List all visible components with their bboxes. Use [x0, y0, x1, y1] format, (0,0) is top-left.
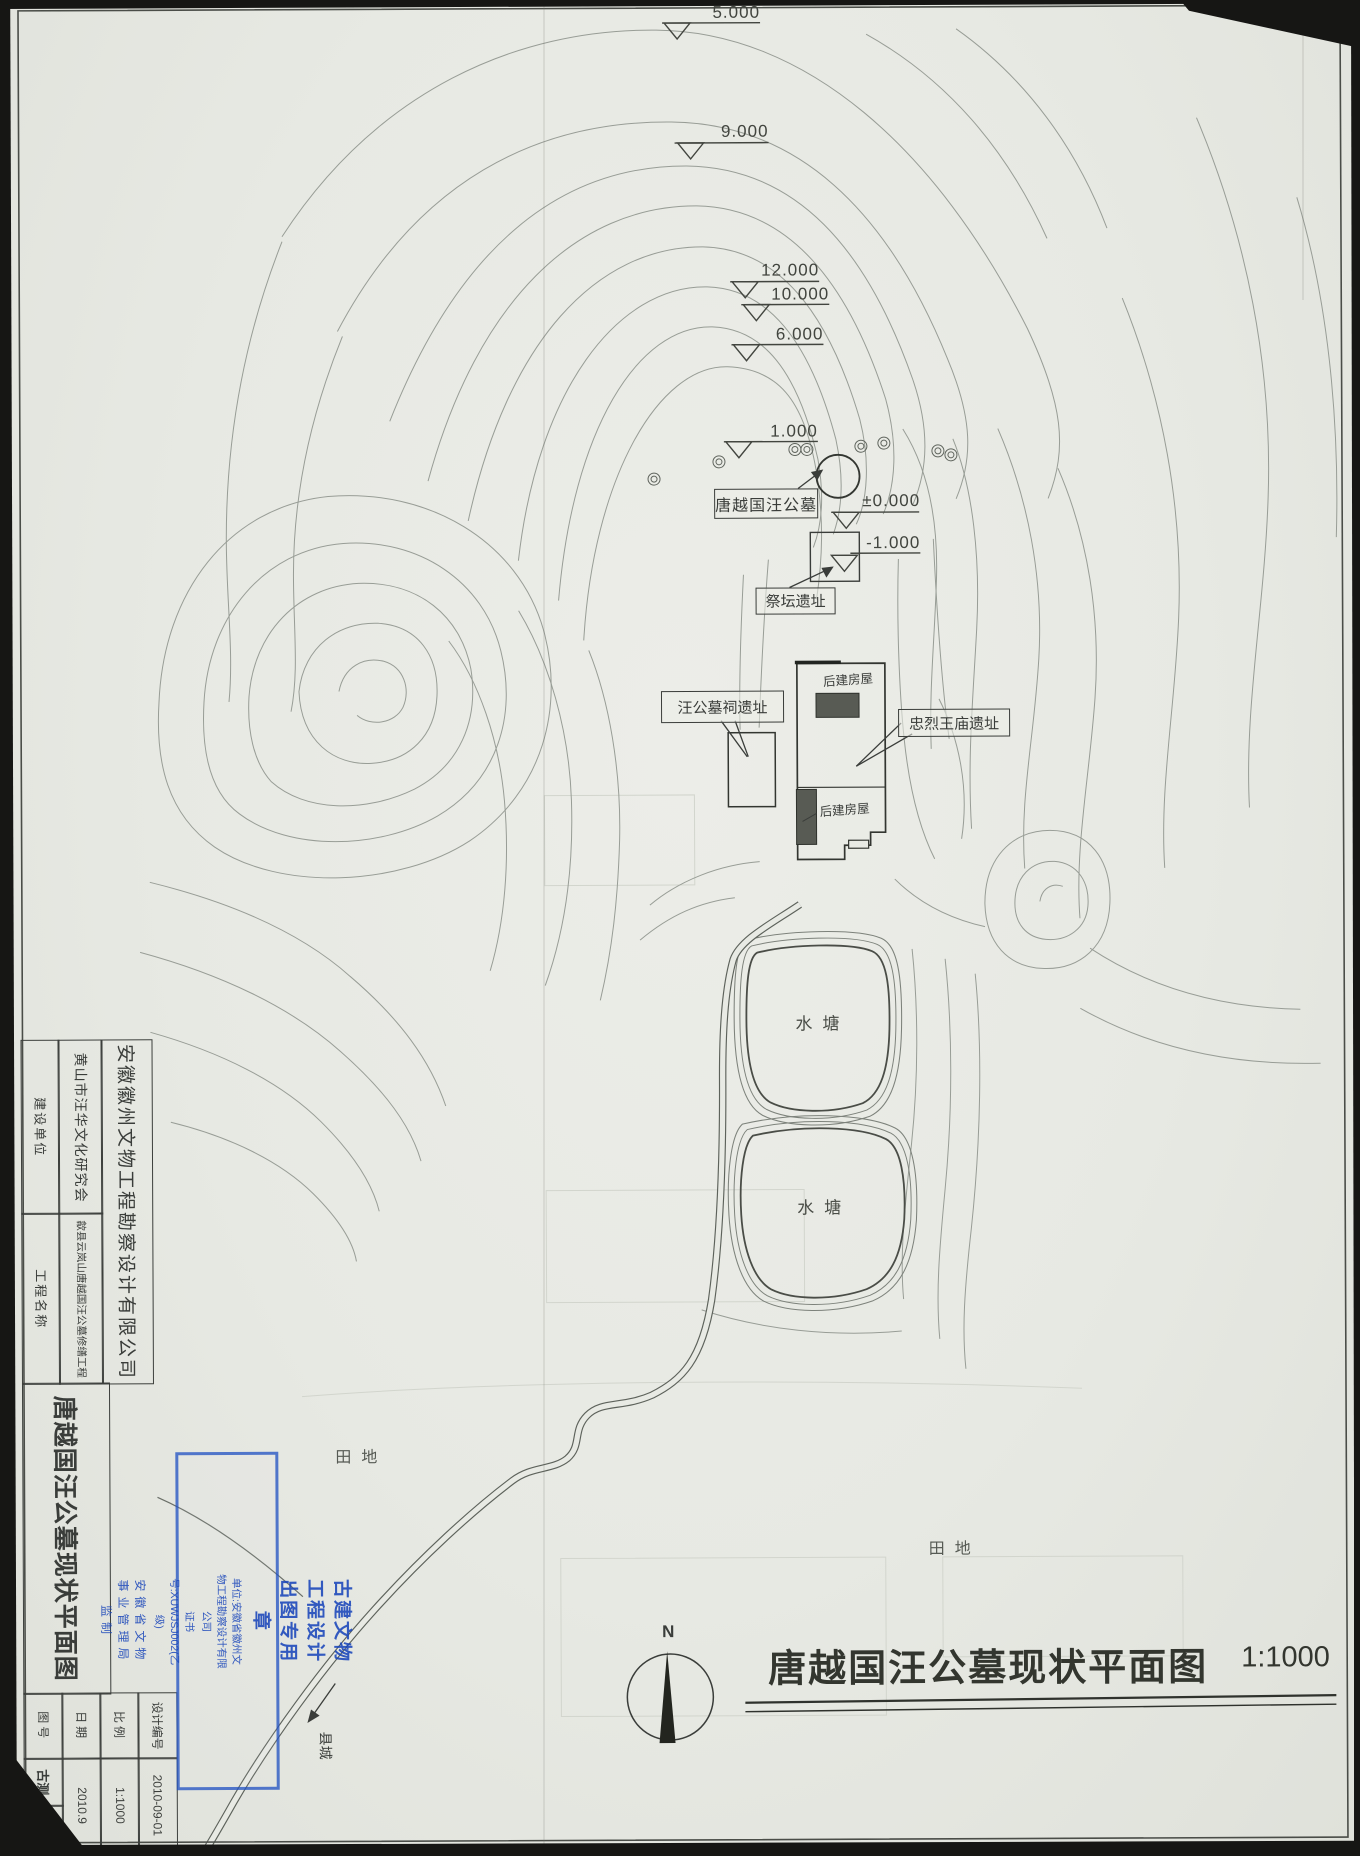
leader-lines — [303, 470, 916, 1722]
elevation-label: 6.000 — [727, 324, 823, 344]
owner-value-cell: 黄山市汪华文化研究会 — [57, 1040, 103, 1215]
later-house-lower-footprint — [796, 789, 816, 844]
elevation-label: 9.000 — [672, 122, 768, 142]
paper-fold — [543, 0, 545, 1850]
elevation-label: 10.000 — [733, 284, 829, 304]
stamp-unit: 单位:安徽省徽州文物工程勘察设计有限公司 — [199, 1572, 244, 1669]
county-town-label: 县城 — [315, 1724, 335, 1768]
north-compass — [627, 1651, 713, 1743]
stamp-cert: 证书号:XUWJSJ002(乙级) — [152, 1573, 197, 1670]
paper-fold — [1302, 0, 1304, 300]
pond-outlines — [727, 931, 917, 1311]
elevation-label: ±0.000 — [824, 491, 920, 511]
caption-underline — [745, 1695, 1336, 1712]
scale-label-cell: 比例 — [99, 1692, 139, 1759]
north-letter: N — [662, 1622, 674, 1642]
scanned-drawing-sheet: 5.000 9.000 12.000 10.000 6.000 1.000 ±0… — [0, 0, 1360, 1856]
altar-site-label: 祭坛遗址 — [756, 587, 836, 614]
stamp-title: 古建文物工程设计出图专用章 — [248, 1572, 357, 1669]
design-no-label-cell: 设计编号 — [137, 1692, 177, 1759]
project-value-cell: 歙县云岚山唐越国汪公墓修缮工程 — [58, 1213, 104, 1385]
project-label-cell: 工程名称 — [21, 1213, 61, 1385]
field-west-label: 田地 — [335, 1443, 387, 1467]
company-cell: 安徽徽州文物工程勘察设计有限公司 — [100, 1039, 154, 1384]
shrine-site-label: 汪公墓祠遗址 — [661, 691, 784, 724]
official-stamp: 古建文物工程设计出图专用章 单位:安徽省徽州文物工程勘察设计有限公司 证书号:X… — [175, 1452, 279, 1790]
scale-value-cell: 1:1000 — [100, 1757, 140, 1852]
design-no-value-cell: 2010-09-01 — [138, 1757, 178, 1852]
elevation-label: 1.000 — [722, 421, 818, 441]
pond-upper-label: 水塘 — [795, 1009, 849, 1034]
later-house-upper-footprint — [816, 693, 859, 717]
later-house-lower-label: 后建房屋 — [819, 797, 870, 820]
sheet-no-label-cell: 图号 — [23, 1693, 63, 1760]
stamp-issuer: 安徽省文物事业管理局监制 — [98, 1573, 149, 1670]
caption-title: 唐越国汪公墓现状平面图 — [768, 1636, 1208, 1693]
elevation-label: 12.000 — [723, 260, 819, 280]
date-label-cell: 日期 — [61, 1693, 101, 1760]
temple-site-label: 忠烈王庙遗址 — [898, 709, 1010, 737]
tree-symbols — [648, 437, 957, 485]
field-east-label: 田地 — [929, 1535, 981, 1559]
pond-lower-label: 水塘 — [797, 1193, 851, 1218]
tomb-label: 唐越国汪公墓 — [714, 488, 818, 518]
drawing-content: 5.000 9.000 12.000 10.000 6.000 1.000 ±0… — [0, 0, 1360, 1856]
elevation-label: -1.000 — [824, 533, 920, 553]
caption-scale: 1:1000 — [1241, 1641, 1330, 1674]
later-house-upper-label: 后建房屋 — [822, 667, 873, 690]
stamp-text: 古建文物工程设计出图专用章 单位:安徽省徽州文物工程勘察设计有限公司 证书号:X… — [98, 1572, 357, 1670]
shrine-ruin-footprint — [728, 733, 775, 807]
owner-label-cell: 建设单位 — [20, 1040, 60, 1215]
